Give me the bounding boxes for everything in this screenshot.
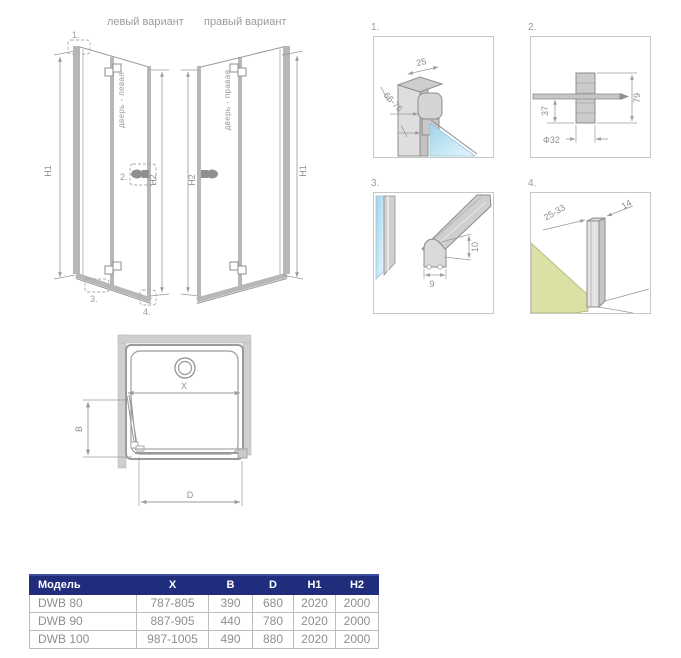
right-variant-diagram: H2 H1 дверь - правая (178, 28, 320, 328)
towel-rail (533, 93, 629, 100)
left-dim-h1-label: H1 (43, 165, 53, 177)
left-dim-h1 (54, 51, 75, 279)
detail-2-dim-37: 37 (540, 106, 550, 116)
detail-2-drawing: 37 79 Ф32 (531, 37, 650, 157)
detail-1-box: 25 66-76 (373, 36, 494, 158)
detail-3-drawing: 9 10 (374, 193, 493, 313)
cell-h1: 2020 (294, 594, 336, 612)
glass-pane (430, 123, 475, 156)
col-header-b: B (209, 575, 253, 594)
cell-x: 987-1005 (137, 630, 209, 648)
left-door-label: дверь - левая (117, 72, 126, 128)
shower-tray (531, 243, 588, 313)
top-view-plan: X B D (70, 325, 310, 520)
detail-2-dim-79: 79 (632, 93, 642, 103)
hinge-icon (105, 266, 113, 274)
left-variant-diagram: H1 H2 (30, 28, 178, 328)
cell-model: DWB 80 (30, 594, 137, 612)
hinge-icon (230, 262, 238, 270)
cell-h2: 2000 (336, 612, 379, 630)
cell-d: 880 (253, 630, 294, 648)
hinge-icon (113, 64, 121, 72)
top-view-dim-d: D (187, 490, 194, 500)
col-header-model: Модель (30, 575, 137, 594)
detail-2-number: 2. (528, 22, 536, 33)
callout-2-label: 2. (120, 172, 128, 182)
cell-h1: 2020 (294, 630, 336, 648)
right-door-handle-icon (201, 170, 218, 179)
detail-4-dim-25-33: 25-33 (542, 202, 567, 222)
col-header-x: X (137, 575, 209, 594)
table-row: DWB 100 987-1005 490 880 2020 2000 (30, 630, 379, 648)
top-view-dim-b: B (74, 426, 84, 432)
detail-1-number: 1. (371, 22, 379, 33)
detail-3-dim-10: 10 (470, 242, 480, 252)
top-view-dim-x: X (181, 381, 187, 391)
table-row: DWB 80 787-805 390 680 2020 2000 (30, 594, 379, 612)
col-header-h2: H2 (336, 575, 379, 594)
detail-4-number: 4. (528, 178, 536, 189)
col-header-h1: H1 (294, 575, 336, 594)
right-dim-h1-label: H1 (298, 165, 308, 177)
frame-strip (384, 196, 395, 275)
detail-4-dim-14: 14 (620, 198, 634, 212)
col-header-d: D (253, 575, 294, 594)
right-variant-title: правый вариант (204, 16, 286, 28)
cell-d: 780 (253, 612, 294, 630)
callout-4-label: 4. (143, 307, 151, 317)
detail-2-dim-f32: Ф32 (543, 135, 560, 145)
detail-4-drawing: 25-33 14 (531, 193, 650, 313)
detail-3-box: 9 10 (373, 192, 494, 314)
left-door-handle-icon (131, 170, 149, 179)
cell-b: 490 (209, 630, 253, 648)
cell-h2: 2000 (336, 594, 379, 612)
cell-model: DWB 90 (30, 612, 137, 630)
cell-model: DWB 100 (30, 630, 137, 648)
table-row: DWB 90 887-905 440 780 2020 2000 (30, 612, 379, 630)
glass-pane (376, 196, 384, 279)
cell-d: 680 (253, 594, 294, 612)
hinge-icon (105, 68, 113, 76)
cell-b: 440 (209, 612, 253, 630)
spec-table: Модель X B D H1 H2 DWB 80 787-805 390 68… (29, 574, 379, 649)
left-dim-h2-label: H2 (148, 174, 158, 186)
right-door-label: дверь - правая (223, 70, 232, 131)
cell-h2: 2000 (336, 630, 379, 648)
cell-b: 390 (209, 594, 253, 612)
detail-4-box: 25-33 14 (530, 192, 651, 314)
corner-block (238, 449, 247, 458)
table-header-row: Модель X B D H1 H2 (30, 575, 379, 594)
hinge-icon (238, 68, 246, 76)
detail-1-drawing: 25 66-76 (374, 37, 493, 157)
detail-3-number: 3. (371, 178, 379, 189)
drain-icon (175, 358, 195, 378)
spec-sheet-page: левый вариант правый вариант H1 (0, 0, 681, 658)
hinge-icon (113, 262, 121, 270)
cell-x: 787-805 (137, 594, 209, 612)
callout-1-label: 1. (72, 30, 80, 40)
cell-h1: 2020 (294, 612, 336, 630)
detail-3-dim-9: 9 (429, 279, 434, 289)
cell-x: 887-905 (137, 612, 209, 630)
left-variant-title: левый вариант (107, 16, 184, 28)
right-dim-h2-label: H2 (187, 174, 197, 186)
vertical-profile-post (587, 218, 605, 307)
callout-3-label: 3. (90, 294, 98, 304)
hinge-icon (238, 266, 246, 274)
detail-1-dim-25: 25 (415, 56, 427, 68)
detail-2-box: 37 79 Ф32 (530, 36, 651, 158)
